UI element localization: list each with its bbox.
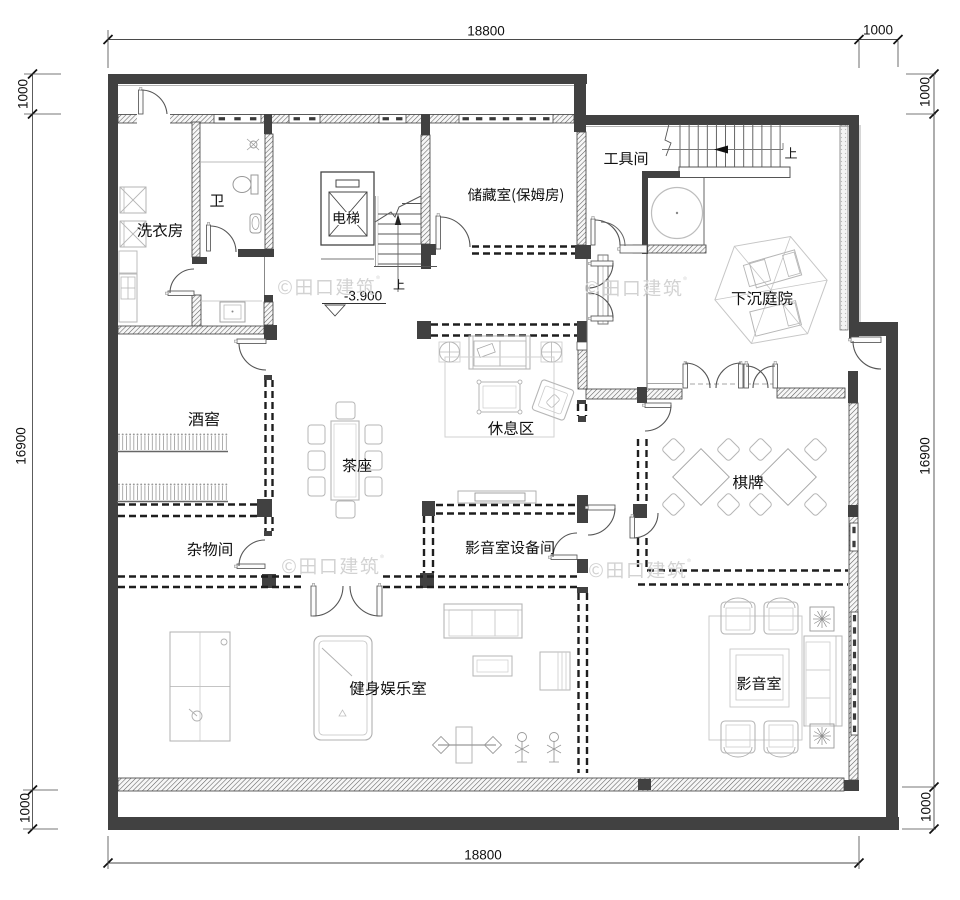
svg-text:1000: 1000 [863,23,893,38]
svg-text:18800: 18800 [467,24,505,39]
svg-text:1000: 1000 [919,792,934,822]
svg-text:16900: 16900 [918,437,933,475]
svg-text:16900: 16900 [14,427,29,465]
svg-text:1000: 1000 [18,793,33,823]
svg-text:1000: 1000 [918,77,933,107]
svg-text:1000: 1000 [16,79,31,109]
svg-text:18800: 18800 [464,848,502,863]
